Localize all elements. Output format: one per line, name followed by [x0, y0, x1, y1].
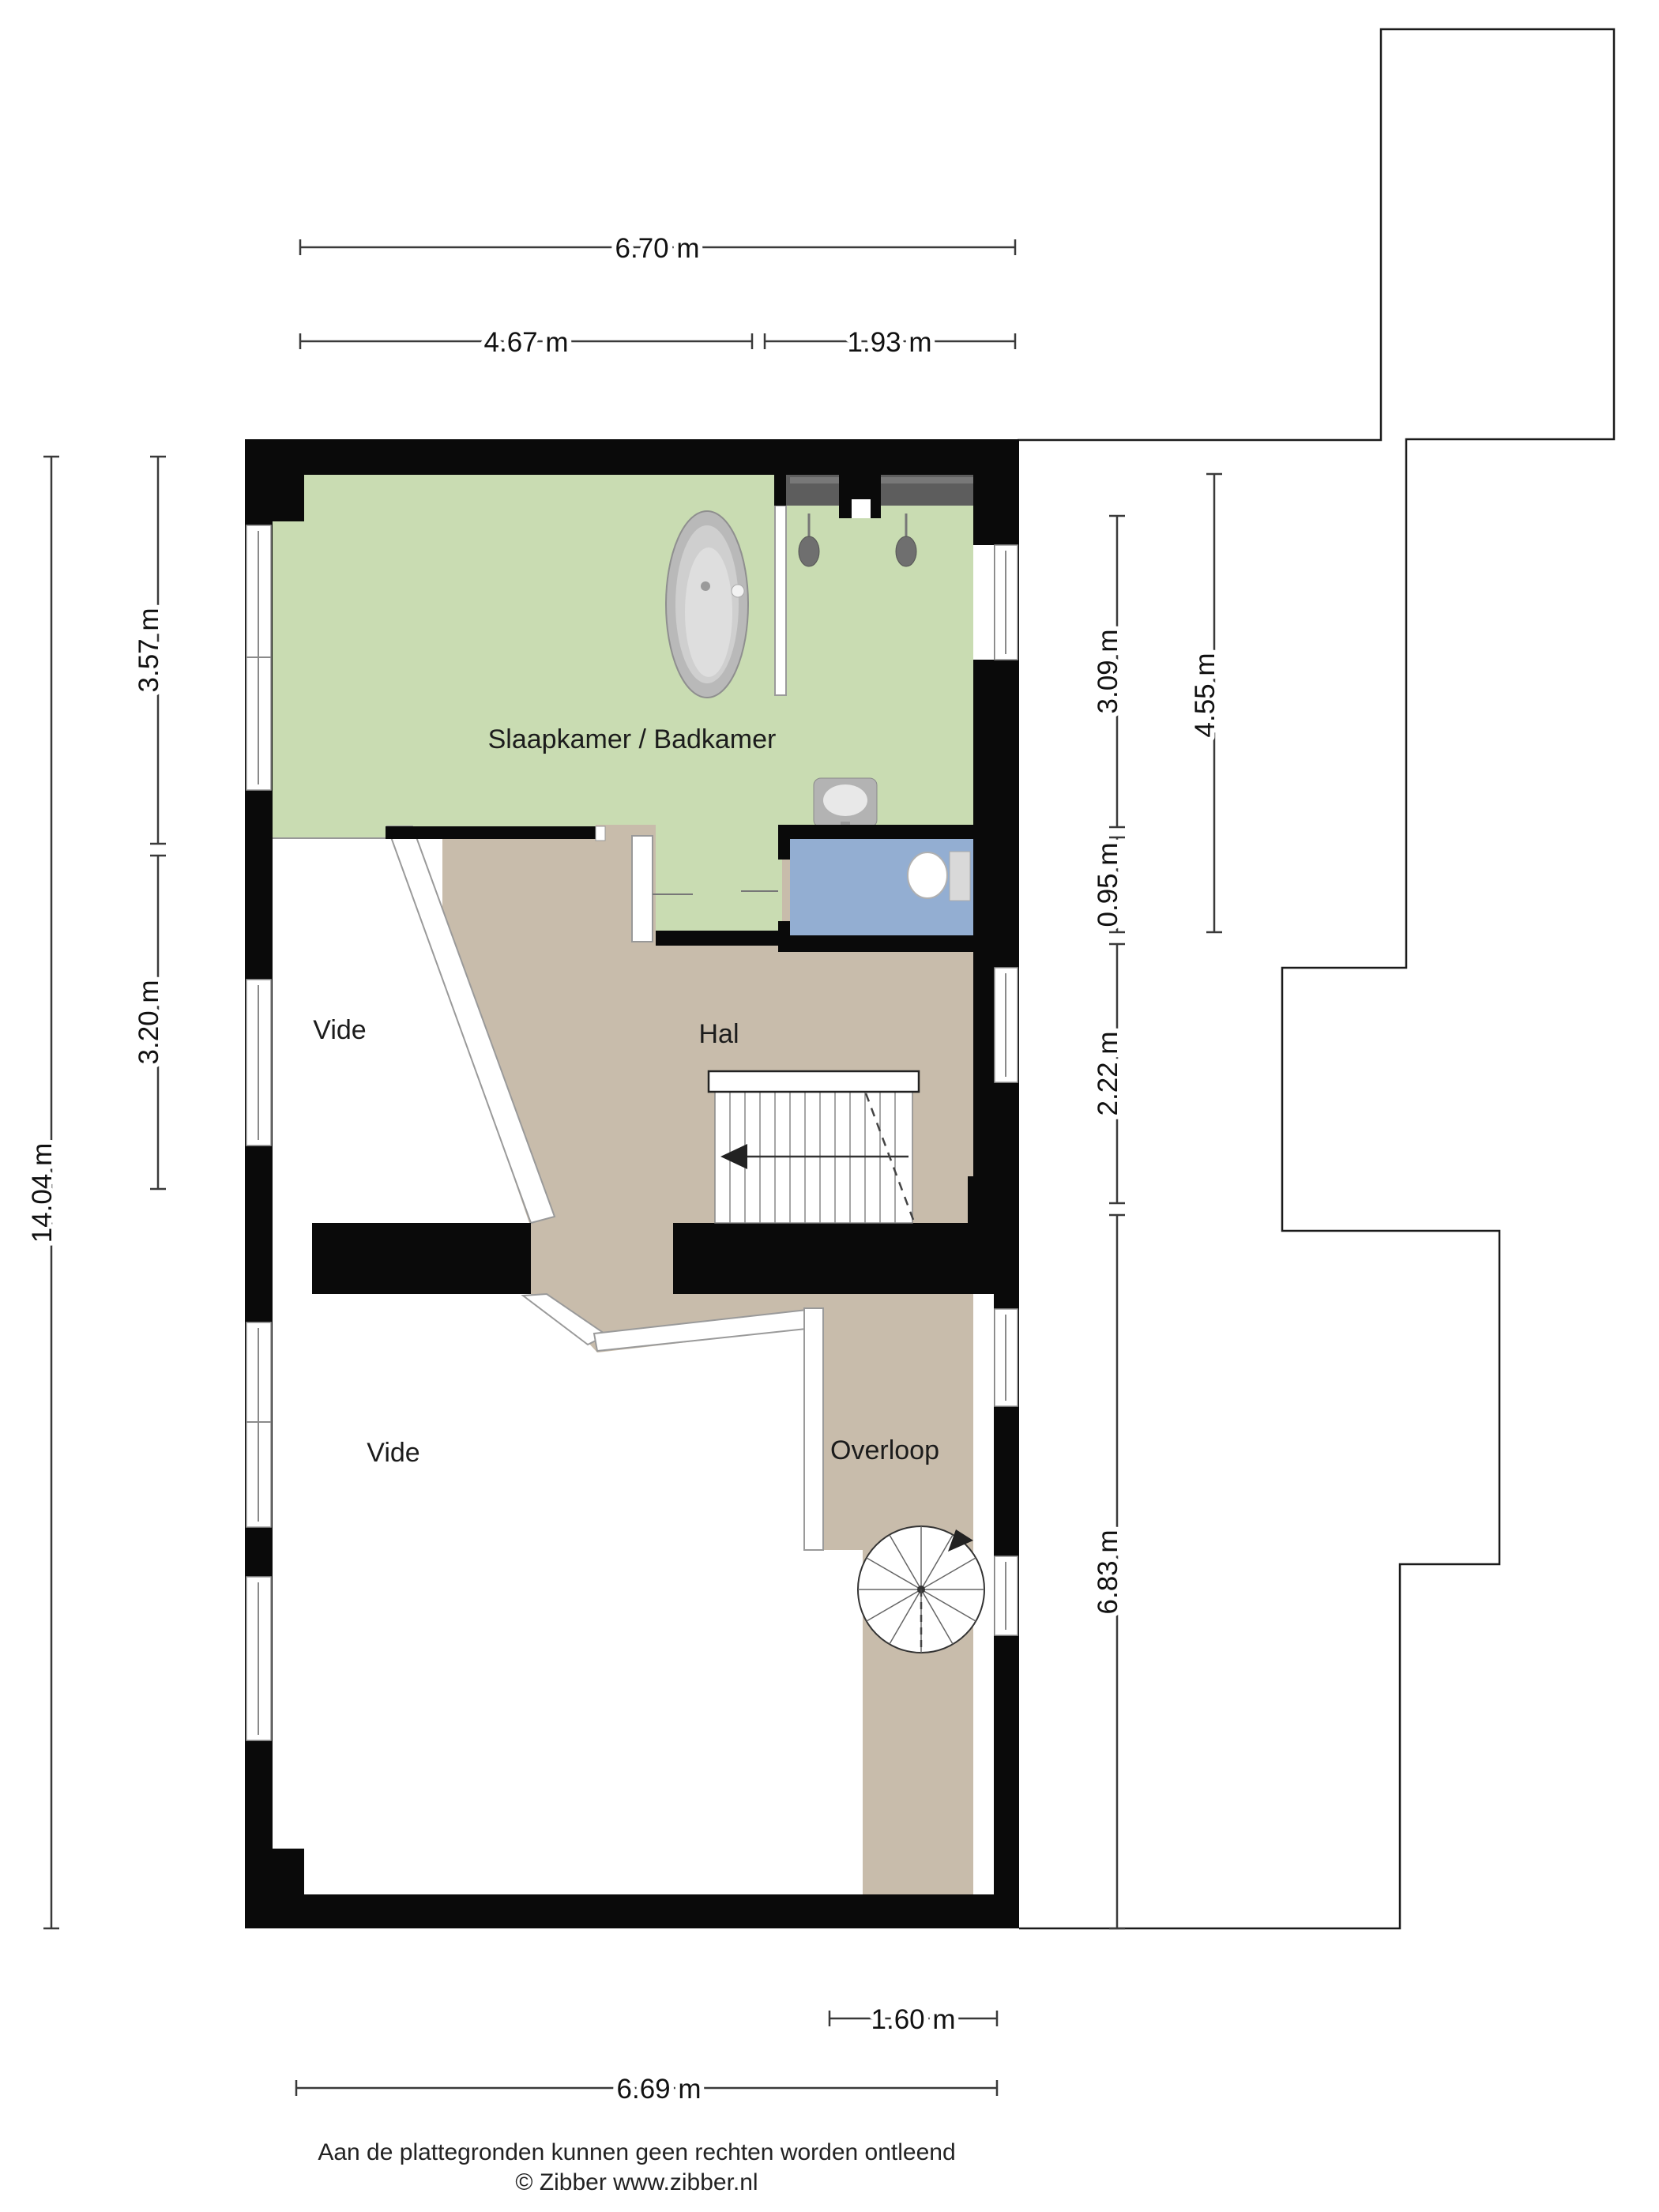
floorplan-page: 6.70 m 4.67 m 1.93 m 14.04 m 3.57 m 3.20…	[0, 0, 1659, 2212]
door-jamb	[596, 826, 605, 841]
dim-right-3: 2.22 m	[1093, 1032, 1123, 1116]
wall-bottom	[245, 1894, 1019, 1928]
dim-right-2: 0.95 m	[1093, 843, 1123, 927]
door-leaf-bedroom	[632, 836, 653, 942]
room-label-slaapkamer-badkamer: Slaapkamer / Badkamer	[488, 724, 777, 754]
dim-left-total: 14.04 m	[27, 1143, 58, 1243]
dim-bottom-small: 1.60 m	[871, 2004, 956, 2035]
dim-top-left: 4.67 m	[484, 327, 569, 358]
wall-bedroom-bottom-left	[386, 826, 600, 839]
wall-toiletroom-left-b	[778, 921, 790, 935]
room-label-vide-boven: Vide	[313, 1015, 366, 1045]
footer: Aan de plattegronden kunnen geen rechten…	[318, 2139, 955, 2195]
wall-niche-left-tab	[774, 475, 786, 506]
bathtub-drain	[701, 581, 710, 591]
stairs-handrail	[709, 1071, 919, 1092]
wall-corner-topleft	[245, 439, 304, 521]
toilet-room-floor	[790, 839, 973, 935]
spiral-staircase	[858, 1526, 984, 1653]
bathtub-faucet	[732, 585, 744, 597]
wall-hal-band-right	[673, 1223, 994, 1294]
room-label-vide-onder: Vide	[367, 1438, 419, 1468]
vide-lower-floor	[273, 1294, 804, 1894]
wall-toiletroom-top	[778, 825, 973, 839]
wall-toiletroom-left-a	[778, 839, 790, 860]
dim-right-4: 6.83 m	[1093, 1530, 1123, 1615]
vide-lower-floor-ext	[804, 1550, 863, 1894]
dim-right-5: 4.55 m	[1190, 653, 1221, 738]
dim-top-right: 1.93 m	[848, 327, 932, 358]
shower-head-icon	[799, 536, 819, 566]
dim-top-total: 6.70 m	[615, 233, 700, 264]
wall-top	[245, 439, 1019, 475]
shower-glass-partition	[775, 506, 786, 695]
dim-bottom-total: 6.69 m	[617, 2074, 702, 2105]
wall-bedroom-bottom-right	[656, 931, 786, 946]
shower-niche-highlight	[790, 477, 977, 483]
vide-parapet-vertical	[804, 1308, 823, 1550]
room-label-overloop: Overloop	[830, 1435, 939, 1465]
dim-left-lower: 3.20 m	[134, 980, 164, 1065]
room-label-hal: Hal	[698, 1019, 739, 1049]
floorplan-canvas: 6.70 m 4.67 m 1.93 m 14.04 m 3.57 m 3.20…	[0, 0, 1659, 2212]
wall-toiletroom-bottom	[778, 935, 994, 952]
bedroom-floor-doorbay	[656, 826, 782, 937]
toilet-icon	[908, 852, 947, 898]
wall-hal-band-left	[312, 1223, 531, 1294]
wall-right	[994, 439, 1019, 1928]
staircase	[709, 1071, 919, 1223]
footer-copyright: © Zibber www.zibber.nl	[515, 2169, 758, 2195]
shower-head-icon	[896, 536, 916, 566]
niche-door-slot	[852, 499, 871, 518]
wall-right-inner-mid	[973, 660, 994, 1177]
wall-right-inner-top	[973, 439, 994, 545]
building-outline	[1018, 29, 1614, 1928]
footer-disclaimer: Aan de plattegronden kunnen geen rechten…	[318, 2139, 955, 2165]
bathtub-basin	[685, 547, 732, 677]
dim-left-upper: 3.57 m	[134, 608, 164, 693]
sink-basin	[823, 784, 867, 816]
dim-right-1: 3.09 m	[1093, 630, 1123, 714]
toilet-tank	[950, 852, 970, 901]
